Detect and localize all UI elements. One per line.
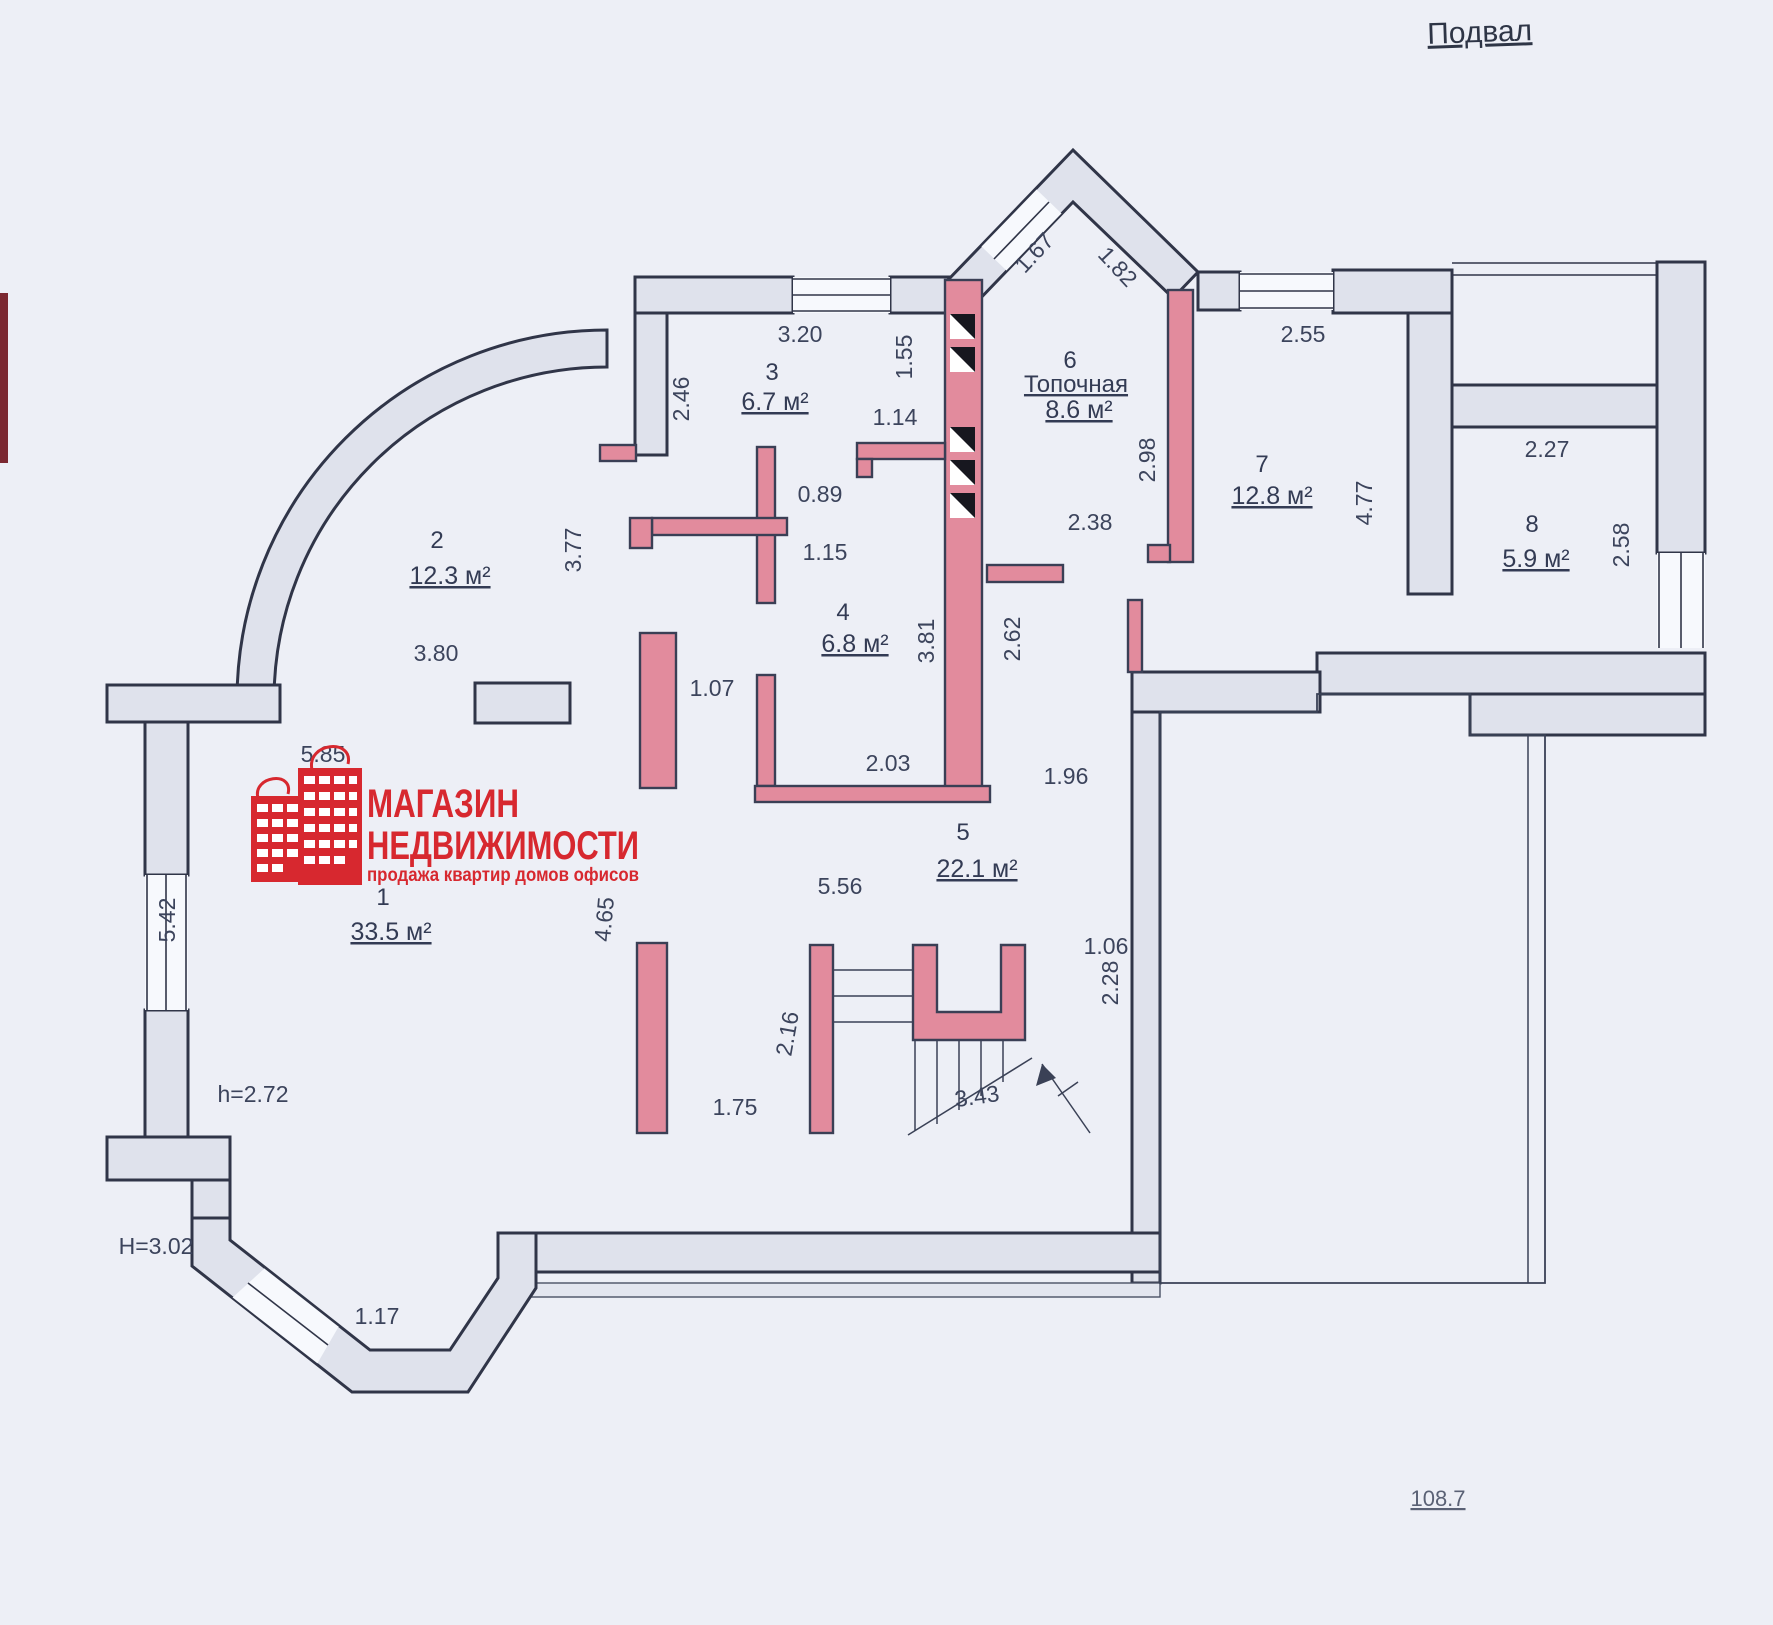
room8-number: 8 — [1525, 511, 1538, 538]
dim-2-03: 2.03 — [866, 750, 911, 776]
total-area: 108.7 — [1410, 1486, 1465, 1511]
floor-plan-svg: 1 33.5 м² 2 12.3 м² 3 6.7 м² 4 6.8 м² 5 … — [0, 0, 1773, 1625]
dim-1-75: 1.75 — [713, 1094, 758, 1120]
dim-5-56: 5.56 — [818, 873, 863, 899]
dim-3-80: 3.80 — [414, 640, 459, 666]
dim-1-17: 1.17 — [355, 1303, 400, 1329]
room3-number: 3 — [765, 359, 778, 386]
dim-2-58: 2.58 — [1608, 523, 1634, 568]
wall-top-room3 — [635, 277, 793, 313]
duct-square — [950, 427, 975, 452]
room7-number: 7 — [1255, 451, 1268, 478]
wall-left-band — [107, 685, 280, 722]
page-title: Подвал — [1427, 14, 1533, 51]
dim-2-46: 2.46 — [668, 377, 694, 422]
partition-niche-band — [987, 565, 1063, 582]
dim-2-38: 2.38 — [1068, 509, 1113, 535]
wall-top-room7-right — [1333, 270, 1452, 313]
dim-0-89: 0.89 — [798, 481, 843, 507]
room4-number: 4 — [836, 599, 849, 626]
wall-tongue — [475, 683, 570, 723]
dim-5-85: 5.85 — [301, 741, 346, 767]
wall-room8-top — [1452, 385, 1657, 427]
room2-area: 12.3 м² — [409, 562, 490, 590]
partition-niche-top — [857, 443, 945, 459]
wall-room3-left — [635, 313, 667, 455]
wall-right-vertical — [1132, 712, 1160, 1283]
scanned-floor-plan-page: 1 33.5 м² 2 12.3 м² 3 6.7 м² 4 6.8 м² 5 … — [0, 0, 1773, 1625]
room1-number: 1 — [376, 884, 389, 911]
partition-room4-left-lower — [757, 675, 775, 786]
dim-2-62: 2.62 — [999, 617, 1025, 662]
logo-line1: МАГАЗИН — [367, 782, 519, 826]
dim-4-65: 4.65 — [589, 896, 619, 943]
dim-2-98: 2.98 — [1134, 438, 1160, 483]
dim-1-96: 1.96 — [1044, 763, 1089, 789]
partition-cross-bar — [652, 518, 787, 535]
scan-edge-artifact — [0, 293, 8, 463]
dim-2-27: 2.27 — [1525, 436, 1570, 462]
dim-3-81: 3.81 — [913, 619, 939, 664]
wall-left-lower — [145, 1010, 188, 1137]
partition-niche-stub — [857, 459, 872, 477]
dim-1-14: 1.14 — [873, 404, 918, 430]
wall-step-a — [1317, 653, 1705, 694]
dim-3-77: 3.77 — [560, 528, 586, 573]
partition-stub-stairs — [1128, 600, 1142, 672]
wall-divider-7-8 — [1408, 313, 1452, 594]
height-small: h=2.72 — [218, 1081, 289, 1107]
room6-name: Топочная — [1024, 371, 1128, 398]
duct-square — [950, 493, 975, 518]
wall-right-exterior — [1657, 262, 1705, 553]
partition-pier-b — [637, 943, 667, 1133]
partition-divider-6-7 — [1168, 290, 1193, 562]
wall-top-room3-right — [890, 277, 952, 313]
dim-5-42: 5.42 — [154, 898, 180, 943]
logo-tagline: продажа квартир домов офисов — [367, 865, 639, 886]
wall-left-upper — [145, 722, 188, 875]
wall-bottom-main — [498, 1233, 1160, 1272]
partition-stub-room3-door — [600, 445, 636, 461]
window-room3-top — [793, 277, 890, 313]
dim-3-20: 3.20 — [778, 321, 823, 347]
duct-square — [950, 460, 975, 485]
room6-number: 6 — [1063, 347, 1076, 374]
duct-square — [950, 347, 975, 372]
dim-1-07: 1.07 — [690, 675, 735, 701]
dim-1-15: 1.15 — [803, 539, 848, 565]
dim-4-77: 4.77 — [1351, 481, 1377, 526]
wall-stairs-right-band — [1132, 672, 1320, 712]
room1-area: 33.5 м² — [350, 918, 431, 946]
room6-area: 8.6 м² — [1045, 396, 1112, 424]
partition-pier-a — [640, 633, 676, 788]
window-right-wall — [1657, 553, 1705, 648]
room8-area: 5.9 м² — [1502, 545, 1569, 573]
duct-square — [950, 314, 975, 339]
room4-area: 6.8 м² — [821, 630, 888, 658]
dim-1-06: 1.06 — [1084, 933, 1129, 959]
height-main: H=3.02 — [119, 1233, 194, 1259]
partition-divider-foot — [1148, 545, 1170, 562]
partition-room4-bottom — [755, 786, 990, 802]
wall-left-step — [107, 1137, 230, 1180]
room5-number: 5 — [956, 819, 969, 846]
dim-1-55: 1.55 — [891, 335, 917, 380]
partition-cross-hook — [630, 518, 652, 548]
wall-step-b — [1470, 694, 1705, 735]
room2-number: 2 — [430, 527, 443, 554]
room3-area: 6.7 м² — [741, 388, 808, 416]
logo-line2: НЕДВИЖИМОСТИ — [367, 824, 639, 868]
dim-2-28: 2.28 — [1097, 961, 1123, 1006]
wall-bottom-outer-band — [520, 1283, 1160, 1297]
room7-area: 12.8 м² — [1231, 482, 1312, 510]
dim-2-55: 2.55 — [1281, 321, 1326, 347]
wall-top-room7-left — [1198, 272, 1240, 310]
stairs-left-rail — [810, 945, 833, 1133]
room5-area: 22.1 м² — [936, 855, 1017, 883]
window-room7-top — [1240, 272, 1333, 310]
